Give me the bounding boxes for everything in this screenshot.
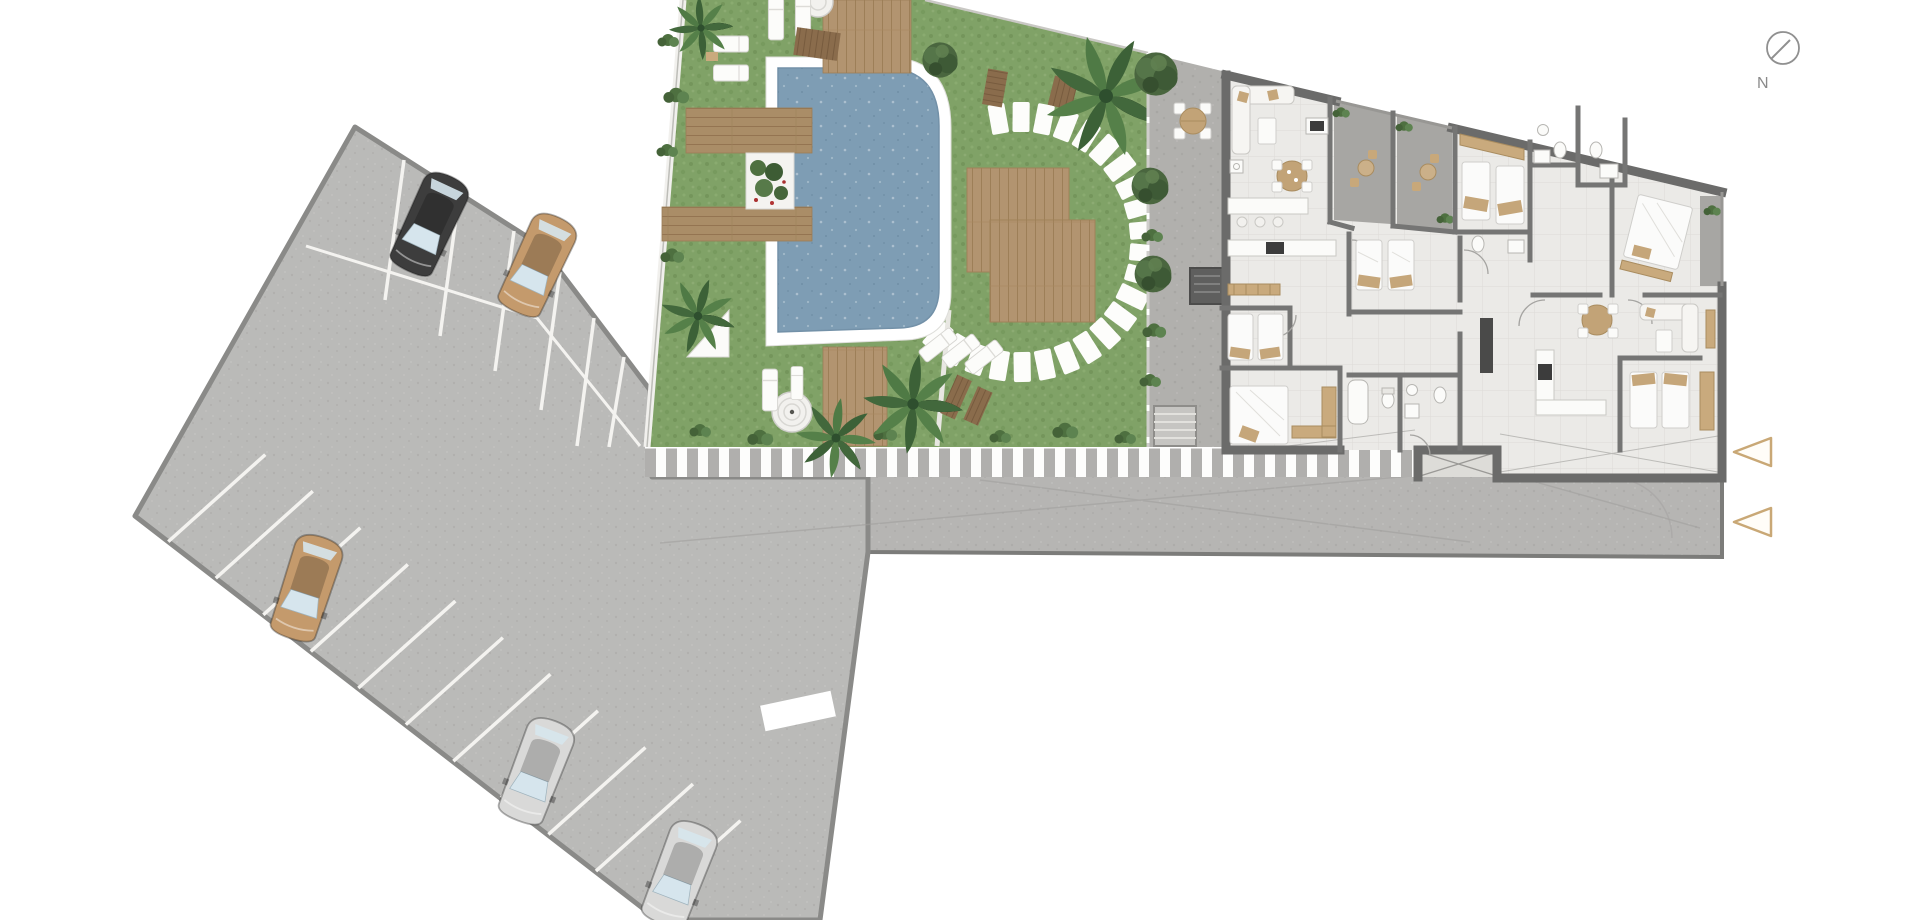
site-plan-canvas: N (0, 0, 1920, 920)
outdoor-dining-set (1174, 103, 1211, 139)
compass-north-label: N (1757, 75, 1769, 92)
tree-icon (922, 42, 957, 77)
apartment-building (1222, 75, 1722, 478)
tree-icon (1132, 168, 1169, 205)
entrance-arrow-icon (1734, 508, 1771, 536)
wood-deck (990, 220, 1095, 322)
patio-steps (1154, 406, 1196, 446)
wood-deck (662, 207, 812, 241)
wood-deck (686, 108, 812, 153)
stair-core (1190, 268, 1224, 304)
pool-water-texture (778, 68, 939, 332)
tree-icon (1134, 52, 1177, 95)
entrance-arrow-icon (1734, 438, 1771, 466)
pool-garden (647, 0, 1191, 494)
entrance-arrows (1734, 438, 1771, 536)
tree-icon (1135, 256, 1172, 293)
planter (746, 153, 794, 209)
entrance-ramp (1420, 451, 1497, 477)
compass-icon: N (1757, 32, 1799, 92)
